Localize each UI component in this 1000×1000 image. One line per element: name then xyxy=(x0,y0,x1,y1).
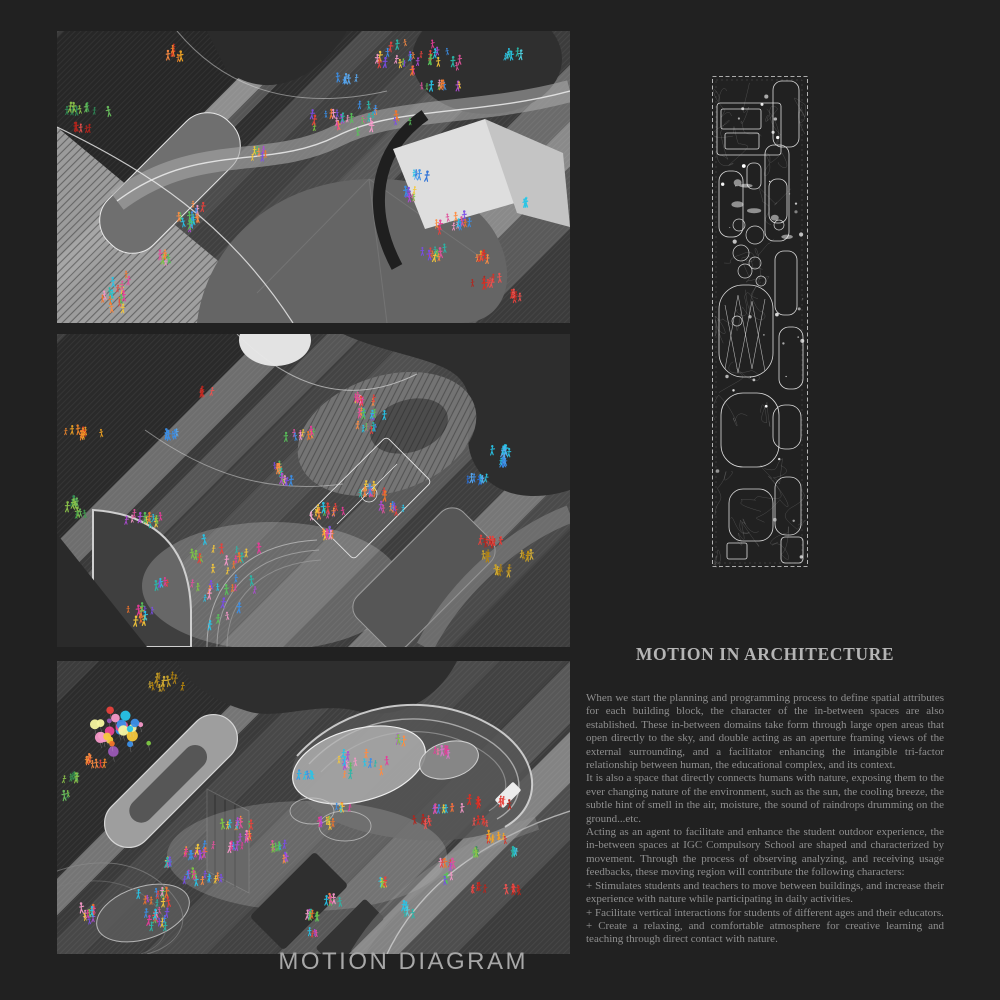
article-bullet-3: + Create a relaxing, and comfortable atm… xyxy=(586,920,944,947)
motion-render-top-svg xyxy=(57,31,570,323)
article-paragraph-3: Acting as an agent to facilitate and enh… xyxy=(586,826,944,880)
motion-render-top xyxy=(57,31,570,323)
article-bullet-2: + Facilitate vertical interactions for s… xyxy=(586,907,944,920)
article-paragraph-2: It is also a space that directly connect… xyxy=(586,772,944,826)
caption-motion-diagram: MOTION DIAGRAM xyxy=(278,948,528,976)
article-title: MOTION IN ARCHITECTURE xyxy=(586,644,944,665)
article: MOTION IN ARCHITECTURE When we start the… xyxy=(586,644,944,947)
motion-render-middle-svg xyxy=(57,334,570,647)
site-plan-svg xyxy=(711,75,809,568)
article-paragraph-1: When we start the planning and programmi… xyxy=(586,692,944,772)
motion-render-bottom xyxy=(57,661,570,954)
site-plan-drawing xyxy=(711,75,809,568)
motion-render-bottom-svg xyxy=(57,661,570,954)
presentation-board: { "colors": { "page_background": "#21212… xyxy=(0,0,1000,1000)
article-bullet-1: + Stimulates students and teachers to mo… xyxy=(586,880,944,907)
motion-render-middle xyxy=(57,334,570,647)
